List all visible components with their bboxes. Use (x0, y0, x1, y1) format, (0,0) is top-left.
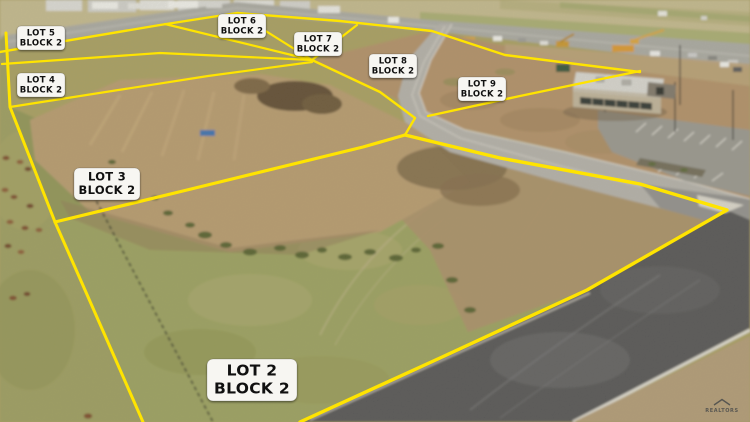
lot-label-lot9: LOT 9 BLOCK 2 (458, 77, 506, 101)
lot-label-lot2: LOT 2 BLOCK 2 (207, 359, 297, 401)
lot6-block: BLOCK 2 (221, 27, 264, 37)
lot7-name: LOT 7 (304, 35, 333, 45)
lot-label-lot8: LOT 8 BLOCK 2 (369, 54, 417, 78)
lot2-name: LOT 2 (227, 362, 278, 380)
lot2-block: BLOCK 2 (214, 380, 290, 398)
lot7-block: BLOCK 2 (297, 45, 340, 55)
lot6-name: LOT 6 (228, 17, 257, 27)
lot9-name: LOT 9 (468, 80, 497, 90)
lot-label-lot5: LOT 5 BLOCK 2 (17, 26, 65, 50)
watermark-text: REALTORS (705, 408, 738, 414)
lot5-block: BLOCK 2 (20, 39, 63, 49)
lot8-block: BLOCK 2 (372, 67, 415, 77)
lot4-block: BLOCK 2 (20, 86, 63, 96)
lot3-block: BLOCK 2 (79, 183, 136, 197)
lot-label-lot6: LOT 6 BLOCK 2 (218, 14, 266, 38)
lot8-name: LOT 8 (379, 57, 408, 67)
lot-label-lot3: LOT 3 BLOCK 2 (74, 168, 140, 200)
lot9-block: BLOCK 2 (461, 90, 504, 100)
lot-label-lot7: LOT 7 BLOCK 2 (294, 32, 342, 56)
lot5-name: LOT 5 (27, 29, 56, 39)
aerial-lot-map: LOT 5 BLOCK 2 LOT 4 BLOCK 2 LOT 6 BLOCK … (0, 0, 750, 422)
lot3-name: LOT 3 (88, 170, 126, 184)
lot4-name: LOT 4 (27, 76, 56, 86)
lot-label-lot4: LOT 4 BLOCK 2 (17, 73, 65, 97)
